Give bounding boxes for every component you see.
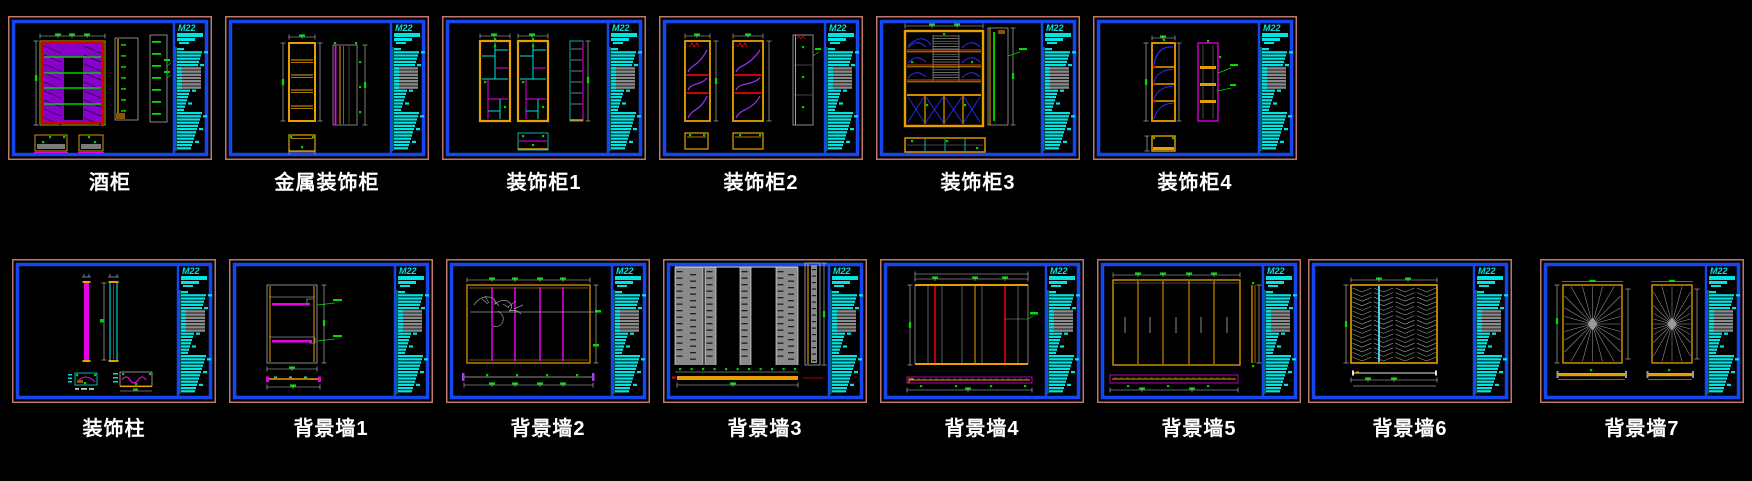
sheet-panel-bg_wall_5[interactable]: M22 bbox=[1097, 259, 1301, 403]
sheet-panel-deco_cabinet_2[interactable]: M22 bbox=[659, 16, 863, 160]
cad-drawing-sheet: M22 酒柜 M22 金属装饰柜 M22 装饰柜1 M22 装饰柜2 M22 bbox=[0, 0, 1752, 481]
panel-label: 酒柜 bbox=[8, 166, 212, 195]
svg-text:M22: M22 bbox=[833, 266, 851, 276]
panel-label: 背景墙3 bbox=[663, 412, 867, 441]
drawing-content bbox=[685, 33, 821, 149]
panel-label: 背景墙6 bbox=[1308, 412, 1512, 441]
drawing-content bbox=[281, 34, 368, 154]
panel-label: 装饰柜4 bbox=[1093, 166, 1297, 195]
title-block: M22 bbox=[1476, 266, 1508, 394]
drawing-content bbox=[462, 277, 601, 387]
sheet-panel-deco_cabinet_3[interactable]: M22 bbox=[876, 16, 1080, 160]
sheet-panel-bg_wall_3[interactable]: M22 bbox=[663, 259, 867, 403]
svg-text:M22: M22 bbox=[182, 266, 200, 276]
drawing-content bbox=[266, 285, 342, 390]
title-block: M22 bbox=[176, 23, 208, 151]
sheet-panel-bg_wall_6[interactable]: M22 bbox=[1308, 259, 1512, 403]
sheet-panel-wine_cabinet[interactable]: M22 bbox=[8, 16, 212, 160]
drawing-content bbox=[672, 263, 827, 388]
sheet-panel-bg_wall_4[interactable]: M22 bbox=[880, 259, 1084, 403]
svg-text:M22: M22 bbox=[1710, 266, 1728, 276]
drawing-content bbox=[1110, 272, 1262, 392]
panel-label: 背景墙7 bbox=[1540, 412, 1744, 441]
panel-label: 背景墙4 bbox=[880, 412, 1084, 441]
drawing-content bbox=[1555, 280, 1700, 380]
sheet-panel-metal_cabinet[interactable]: M22 bbox=[225, 16, 429, 160]
drawing-content bbox=[907, 272, 1038, 393]
svg-text:M22: M22 bbox=[616, 266, 634, 276]
sheet-panel-deco_cabinet_1[interactable]: M22 bbox=[442, 16, 646, 160]
sheet-panel-bg_wall_7[interactable]: M22 bbox=[1540, 259, 1744, 403]
sheet-panel-bg_wall_2[interactable]: M22 bbox=[446, 259, 650, 403]
title-block: M22 bbox=[393, 23, 425, 151]
sheet-panel-deco_column[interactable]: M22 bbox=[12, 259, 216, 403]
title-block: M22 bbox=[180, 266, 212, 394]
svg-text:M22: M22 bbox=[178, 23, 196, 33]
title-block: M22 bbox=[1265, 266, 1297, 394]
sheet-panel-bg_wall_1[interactable]: M22 bbox=[229, 259, 433, 403]
svg-text:M22: M22 bbox=[829, 23, 847, 33]
svg-text:M22: M22 bbox=[1478, 266, 1496, 276]
title-block: M22 bbox=[1261, 23, 1293, 151]
drawing-content bbox=[480, 33, 591, 150]
title-block: M22 bbox=[1044, 23, 1076, 151]
drawing-content bbox=[68, 274, 152, 391]
title-block: M22 bbox=[831, 266, 863, 394]
svg-text:M22: M22 bbox=[1046, 23, 1064, 33]
panel-label: 装饰柱 bbox=[12, 412, 216, 441]
svg-text:M22: M22 bbox=[395, 23, 413, 33]
panel-label: 金属装饰柜 bbox=[225, 166, 429, 195]
drawing-content bbox=[1144, 35, 1239, 151]
svg-text:M22: M22 bbox=[1050, 266, 1068, 276]
panel-label: 背景墙1 bbox=[229, 412, 433, 441]
svg-text:M22: M22 bbox=[1267, 266, 1285, 276]
svg-text:M22: M22 bbox=[1263, 23, 1281, 33]
panel-label: 装饰柜3 bbox=[876, 166, 1080, 195]
title-block: M22 bbox=[397, 266, 429, 394]
title-block: M22 bbox=[827, 23, 859, 151]
sheet-panel-deco_cabinet_4[interactable]: M22 bbox=[1093, 16, 1297, 160]
panel-label: 装饰柜1 bbox=[442, 166, 646, 195]
title-block: M22 bbox=[1048, 266, 1080, 394]
svg-text:M22: M22 bbox=[612, 23, 630, 33]
drawing-content bbox=[1344, 277, 1438, 386]
title-block: M22 bbox=[614, 266, 646, 394]
title-block: M22 bbox=[1708, 266, 1740, 394]
title-block: M22 bbox=[610, 23, 642, 151]
panel-label: 背景墙5 bbox=[1097, 412, 1301, 441]
panel-label: 装饰柜2 bbox=[659, 166, 863, 195]
drawing-content bbox=[34, 33, 172, 152]
panel-label: 背景墙2 bbox=[446, 412, 650, 441]
svg-text:M22: M22 bbox=[399, 266, 417, 276]
drawing-content bbox=[905, 23, 1027, 152]
